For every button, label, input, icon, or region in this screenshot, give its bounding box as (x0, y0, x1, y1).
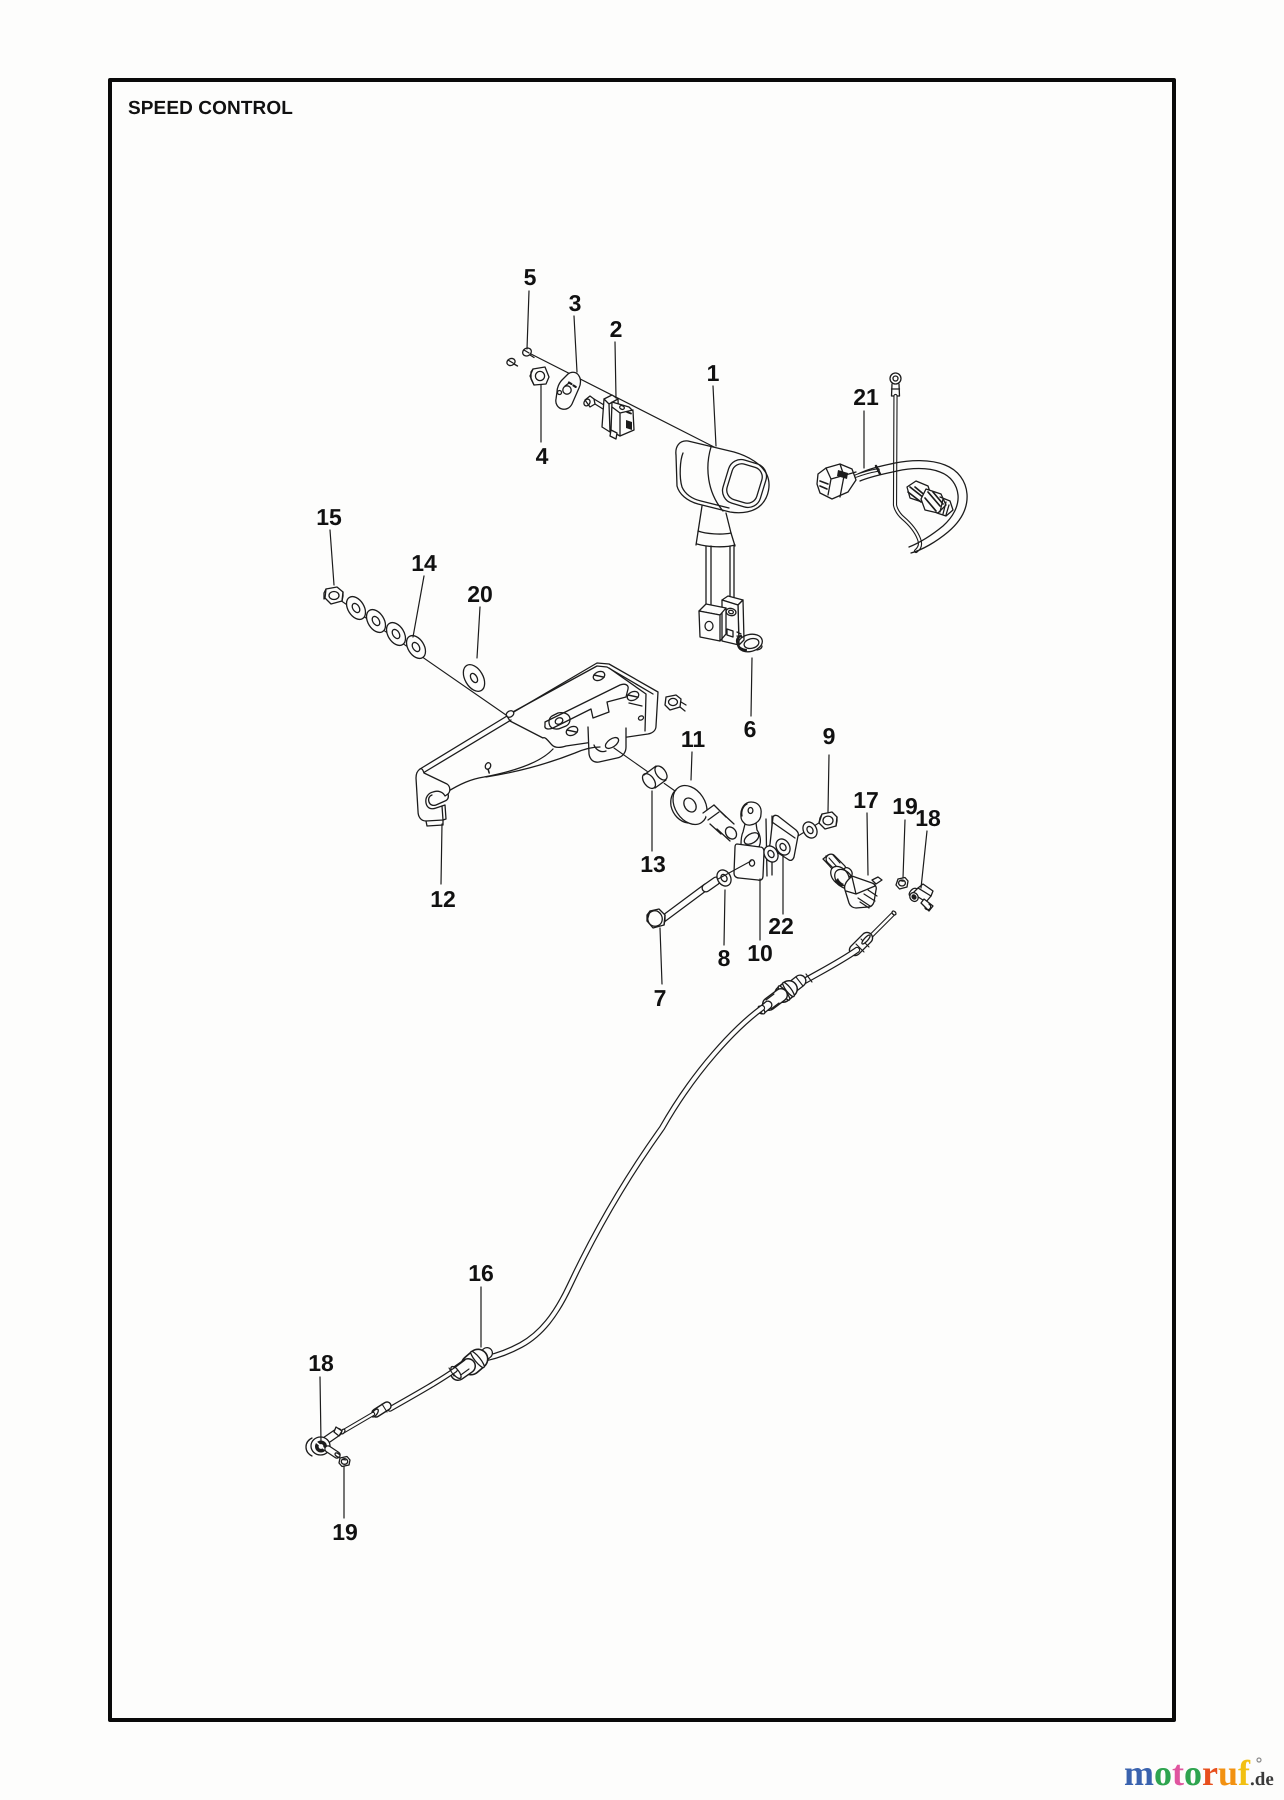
svg-text:13: 13 (640, 851, 666, 877)
svg-text:21: 21 (853, 384, 879, 410)
svg-text:1: 1 (707, 360, 720, 386)
svg-text:20: 20 (467, 581, 493, 607)
svg-text:7: 7 (654, 985, 667, 1011)
svg-text:19: 19 (892, 793, 918, 819)
svg-text:9: 9 (823, 723, 836, 749)
svg-text:5: 5 (524, 264, 537, 290)
svg-text:17: 17 (853, 787, 879, 813)
svg-text:18: 18 (915, 805, 941, 831)
svg-text:15: 15 (316, 504, 342, 530)
svg-text:14: 14 (411, 550, 437, 576)
svg-text:19: 19 (332, 1519, 358, 1545)
svg-text:3: 3 (569, 290, 582, 316)
svg-text:2: 2 (610, 316, 623, 342)
svg-text:12: 12 (430, 886, 456, 912)
svg-text:18: 18 (308, 1350, 334, 1376)
svg-text:4: 4 (536, 443, 549, 469)
svg-text:motoruf.de: motoruf.de (1124, 1753, 1274, 1793)
svg-text:SPEED CONTROL: SPEED CONTROL (128, 98, 293, 119)
svg-text:8: 8 (718, 945, 731, 971)
svg-text:11: 11 (681, 726, 706, 752)
svg-text:22: 22 (768, 913, 794, 939)
svg-text:6: 6 (744, 716, 757, 742)
svg-text:10: 10 (747, 940, 773, 966)
svg-text:16: 16 (468, 1260, 494, 1286)
